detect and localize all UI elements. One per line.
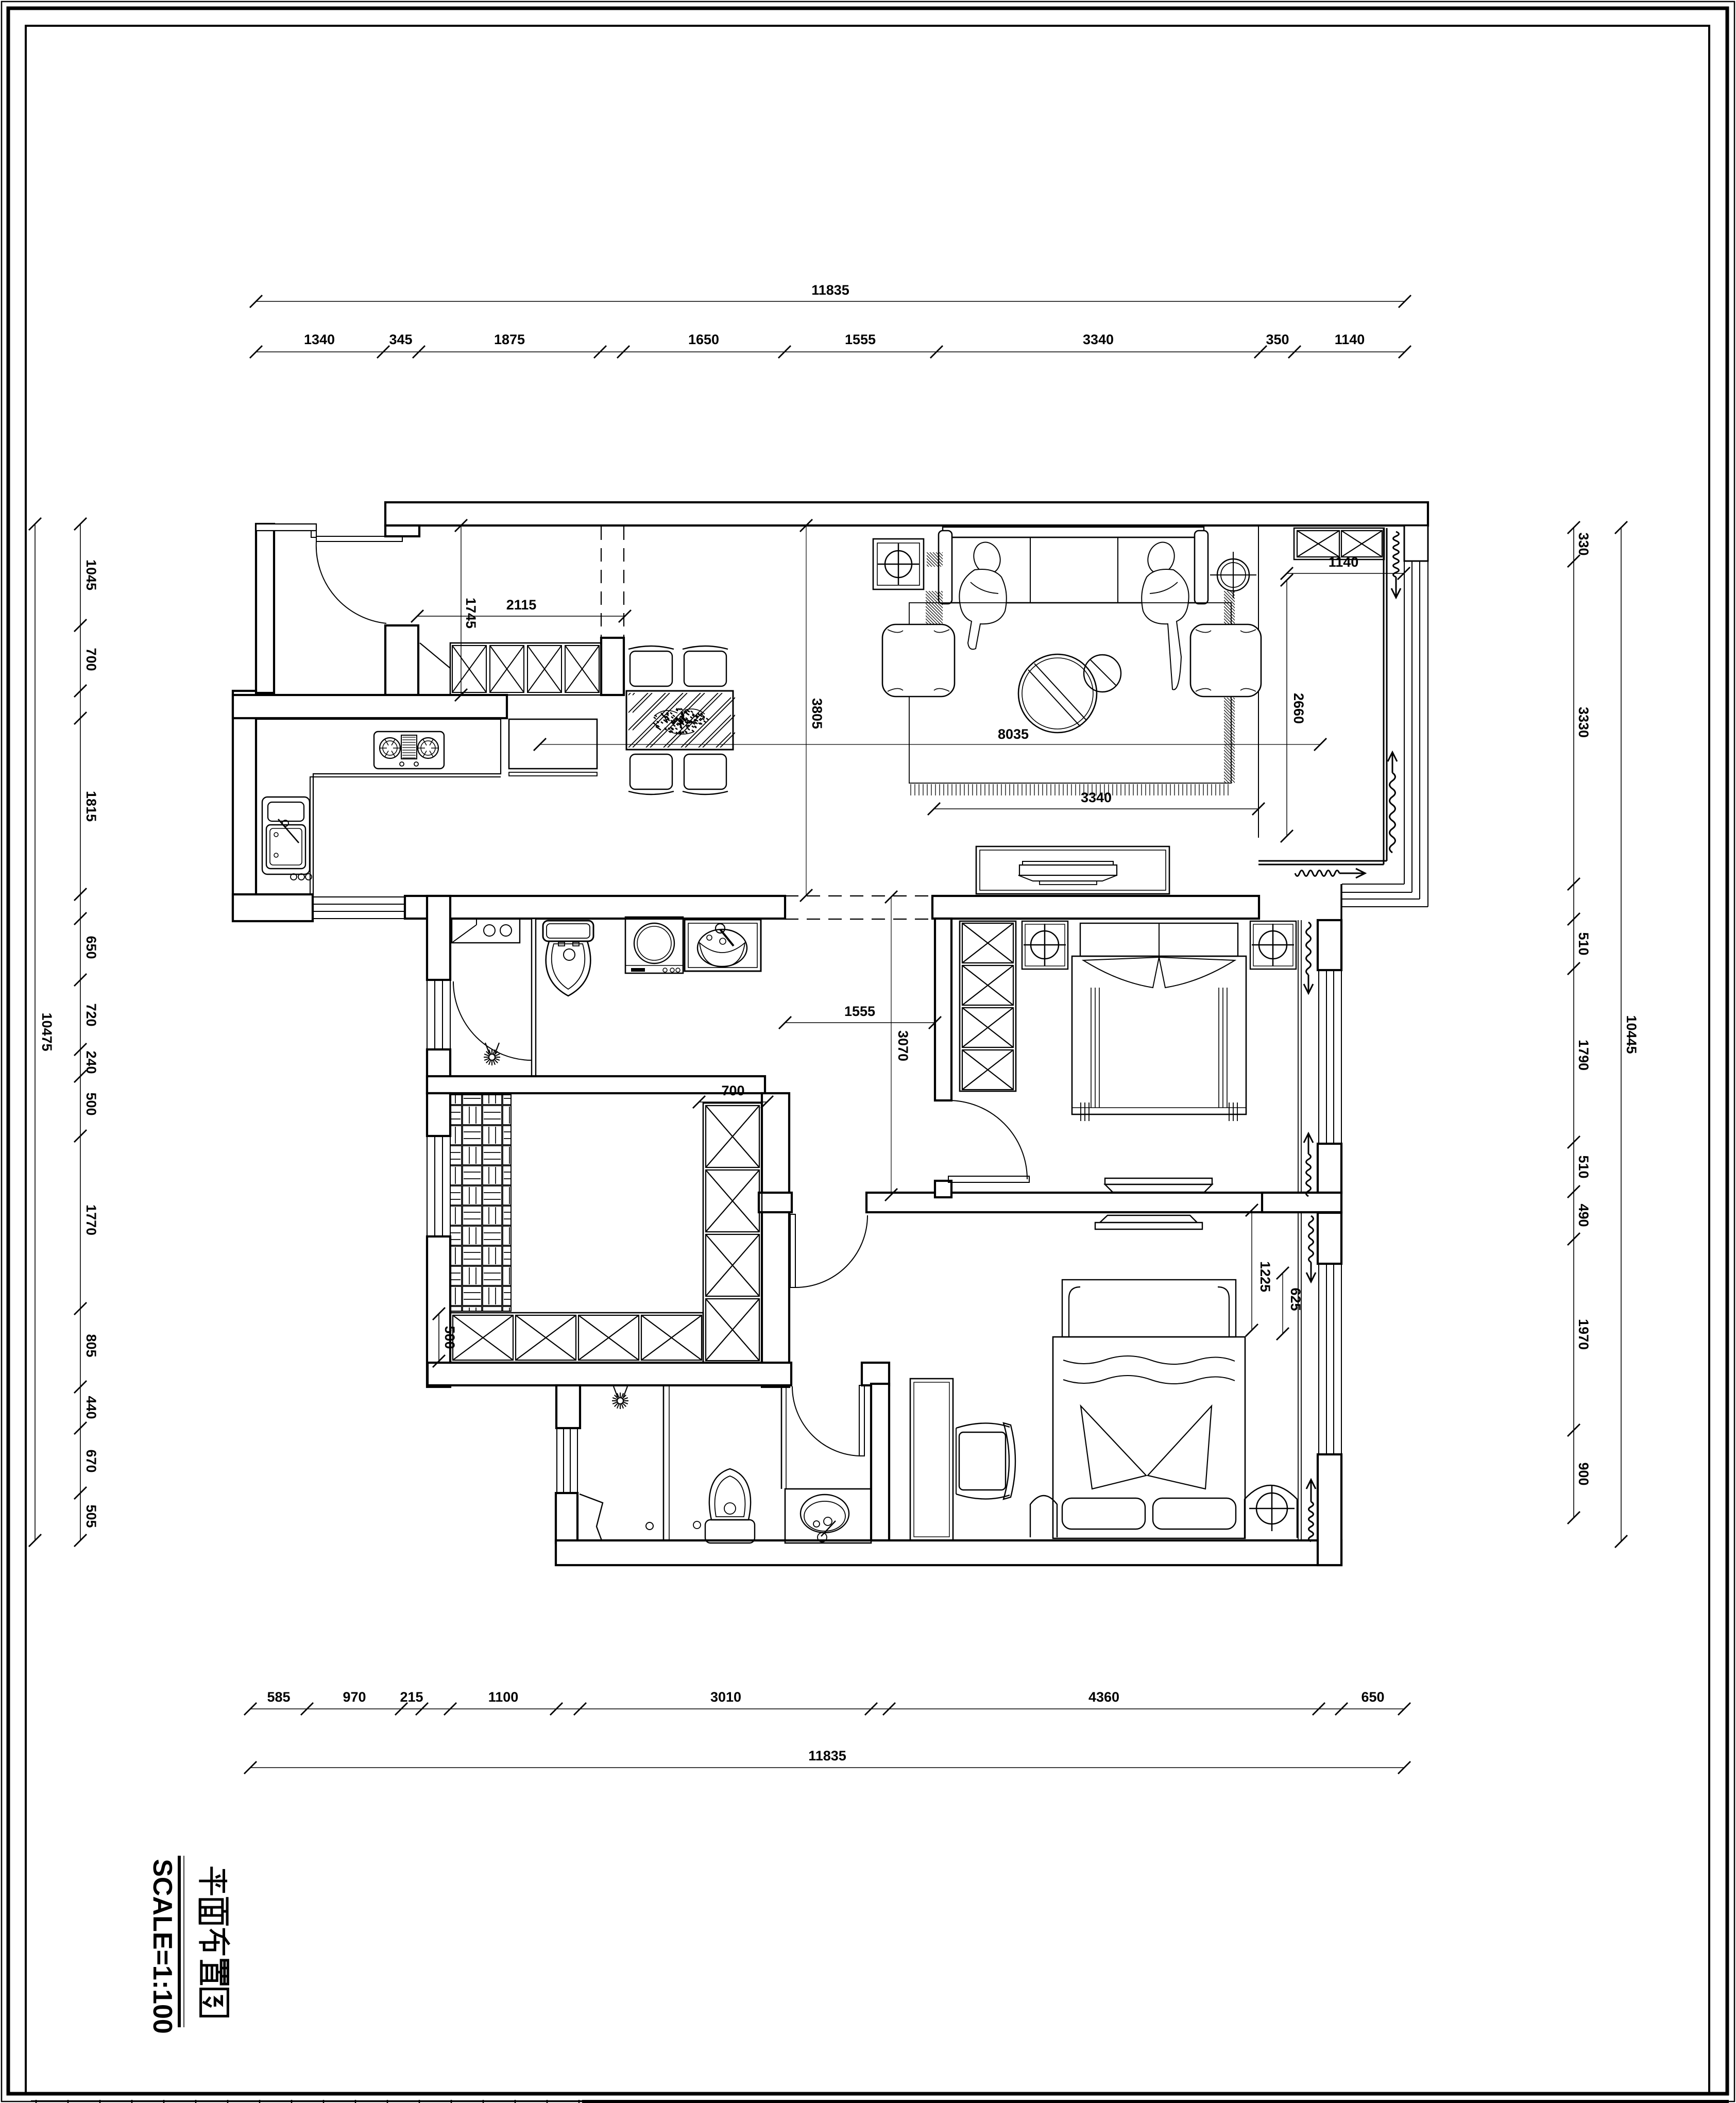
svg-text:1970: 1970 bbox=[1576, 1319, 1591, 1350]
svg-text:700: 700 bbox=[83, 648, 99, 671]
svg-text:970: 970 bbox=[343, 1689, 366, 1705]
svg-text:650: 650 bbox=[1361, 1689, 1384, 1705]
svg-text:510: 510 bbox=[1576, 932, 1591, 955]
svg-text:500: 500 bbox=[442, 1326, 457, 1349]
svg-text:11835: 11835 bbox=[808, 1748, 846, 1763]
svg-text:500: 500 bbox=[83, 1092, 99, 1115]
svg-text:11835: 11835 bbox=[811, 282, 849, 298]
svg-text:1340: 1340 bbox=[304, 332, 335, 347]
svg-text:700: 700 bbox=[721, 1083, 744, 1098]
svg-text:240: 240 bbox=[83, 1050, 99, 1074]
svg-text:8035: 8035 bbox=[998, 726, 1029, 742]
svg-text:3805: 3805 bbox=[809, 698, 825, 729]
svg-text:440: 440 bbox=[83, 1396, 99, 1419]
svg-text:2115: 2115 bbox=[506, 597, 537, 613]
svg-text:1555: 1555 bbox=[845, 332, 876, 347]
svg-text:10445: 10445 bbox=[1624, 1015, 1639, 1054]
svg-text:510: 510 bbox=[1576, 1155, 1591, 1178]
svg-text:1100: 1100 bbox=[488, 1689, 519, 1705]
svg-text:350: 350 bbox=[1266, 332, 1289, 347]
svg-text:2660: 2660 bbox=[1291, 693, 1306, 724]
svg-text:SCALE=1:100: SCALE=1:100 bbox=[147, 1859, 177, 2034]
svg-text:345: 345 bbox=[389, 332, 412, 347]
svg-text:1815: 1815 bbox=[83, 791, 99, 822]
svg-text:3070: 3070 bbox=[895, 1030, 911, 1061]
svg-text:1745: 1745 bbox=[463, 598, 479, 629]
svg-text:10475: 10475 bbox=[39, 1012, 55, 1051]
svg-text:490: 490 bbox=[1576, 1203, 1591, 1227]
svg-text:625: 625 bbox=[1288, 1287, 1303, 1311]
svg-text:215: 215 bbox=[400, 1689, 423, 1705]
svg-text:3340: 3340 bbox=[1083, 332, 1114, 347]
svg-text:670: 670 bbox=[83, 1449, 99, 1472]
svg-text:1875: 1875 bbox=[494, 332, 525, 347]
svg-text:805: 805 bbox=[83, 1334, 99, 1357]
svg-text:585: 585 bbox=[267, 1689, 290, 1705]
svg-text:3010: 3010 bbox=[710, 1689, 741, 1705]
svg-text:505: 505 bbox=[83, 1504, 99, 1528]
svg-text:1650: 1650 bbox=[688, 332, 719, 347]
svg-text:1140: 1140 bbox=[1329, 554, 1359, 570]
svg-text:1140: 1140 bbox=[1335, 332, 1365, 347]
svg-text:1225: 1225 bbox=[1257, 1261, 1273, 1292]
svg-text:4360: 4360 bbox=[1088, 1689, 1119, 1705]
svg-text:650: 650 bbox=[83, 936, 99, 959]
svg-text:3330: 3330 bbox=[1576, 707, 1591, 738]
svg-text:330: 330 bbox=[1576, 532, 1591, 555]
svg-text:3340: 3340 bbox=[1081, 790, 1112, 805]
svg-text:720: 720 bbox=[83, 1003, 99, 1026]
svg-text:1770: 1770 bbox=[83, 1205, 99, 1235]
svg-text:1555: 1555 bbox=[844, 1004, 875, 1019]
svg-text:900: 900 bbox=[1576, 1462, 1591, 1485]
svg-text:1790: 1790 bbox=[1576, 1040, 1591, 1071]
svg-text:1045: 1045 bbox=[83, 559, 99, 590]
